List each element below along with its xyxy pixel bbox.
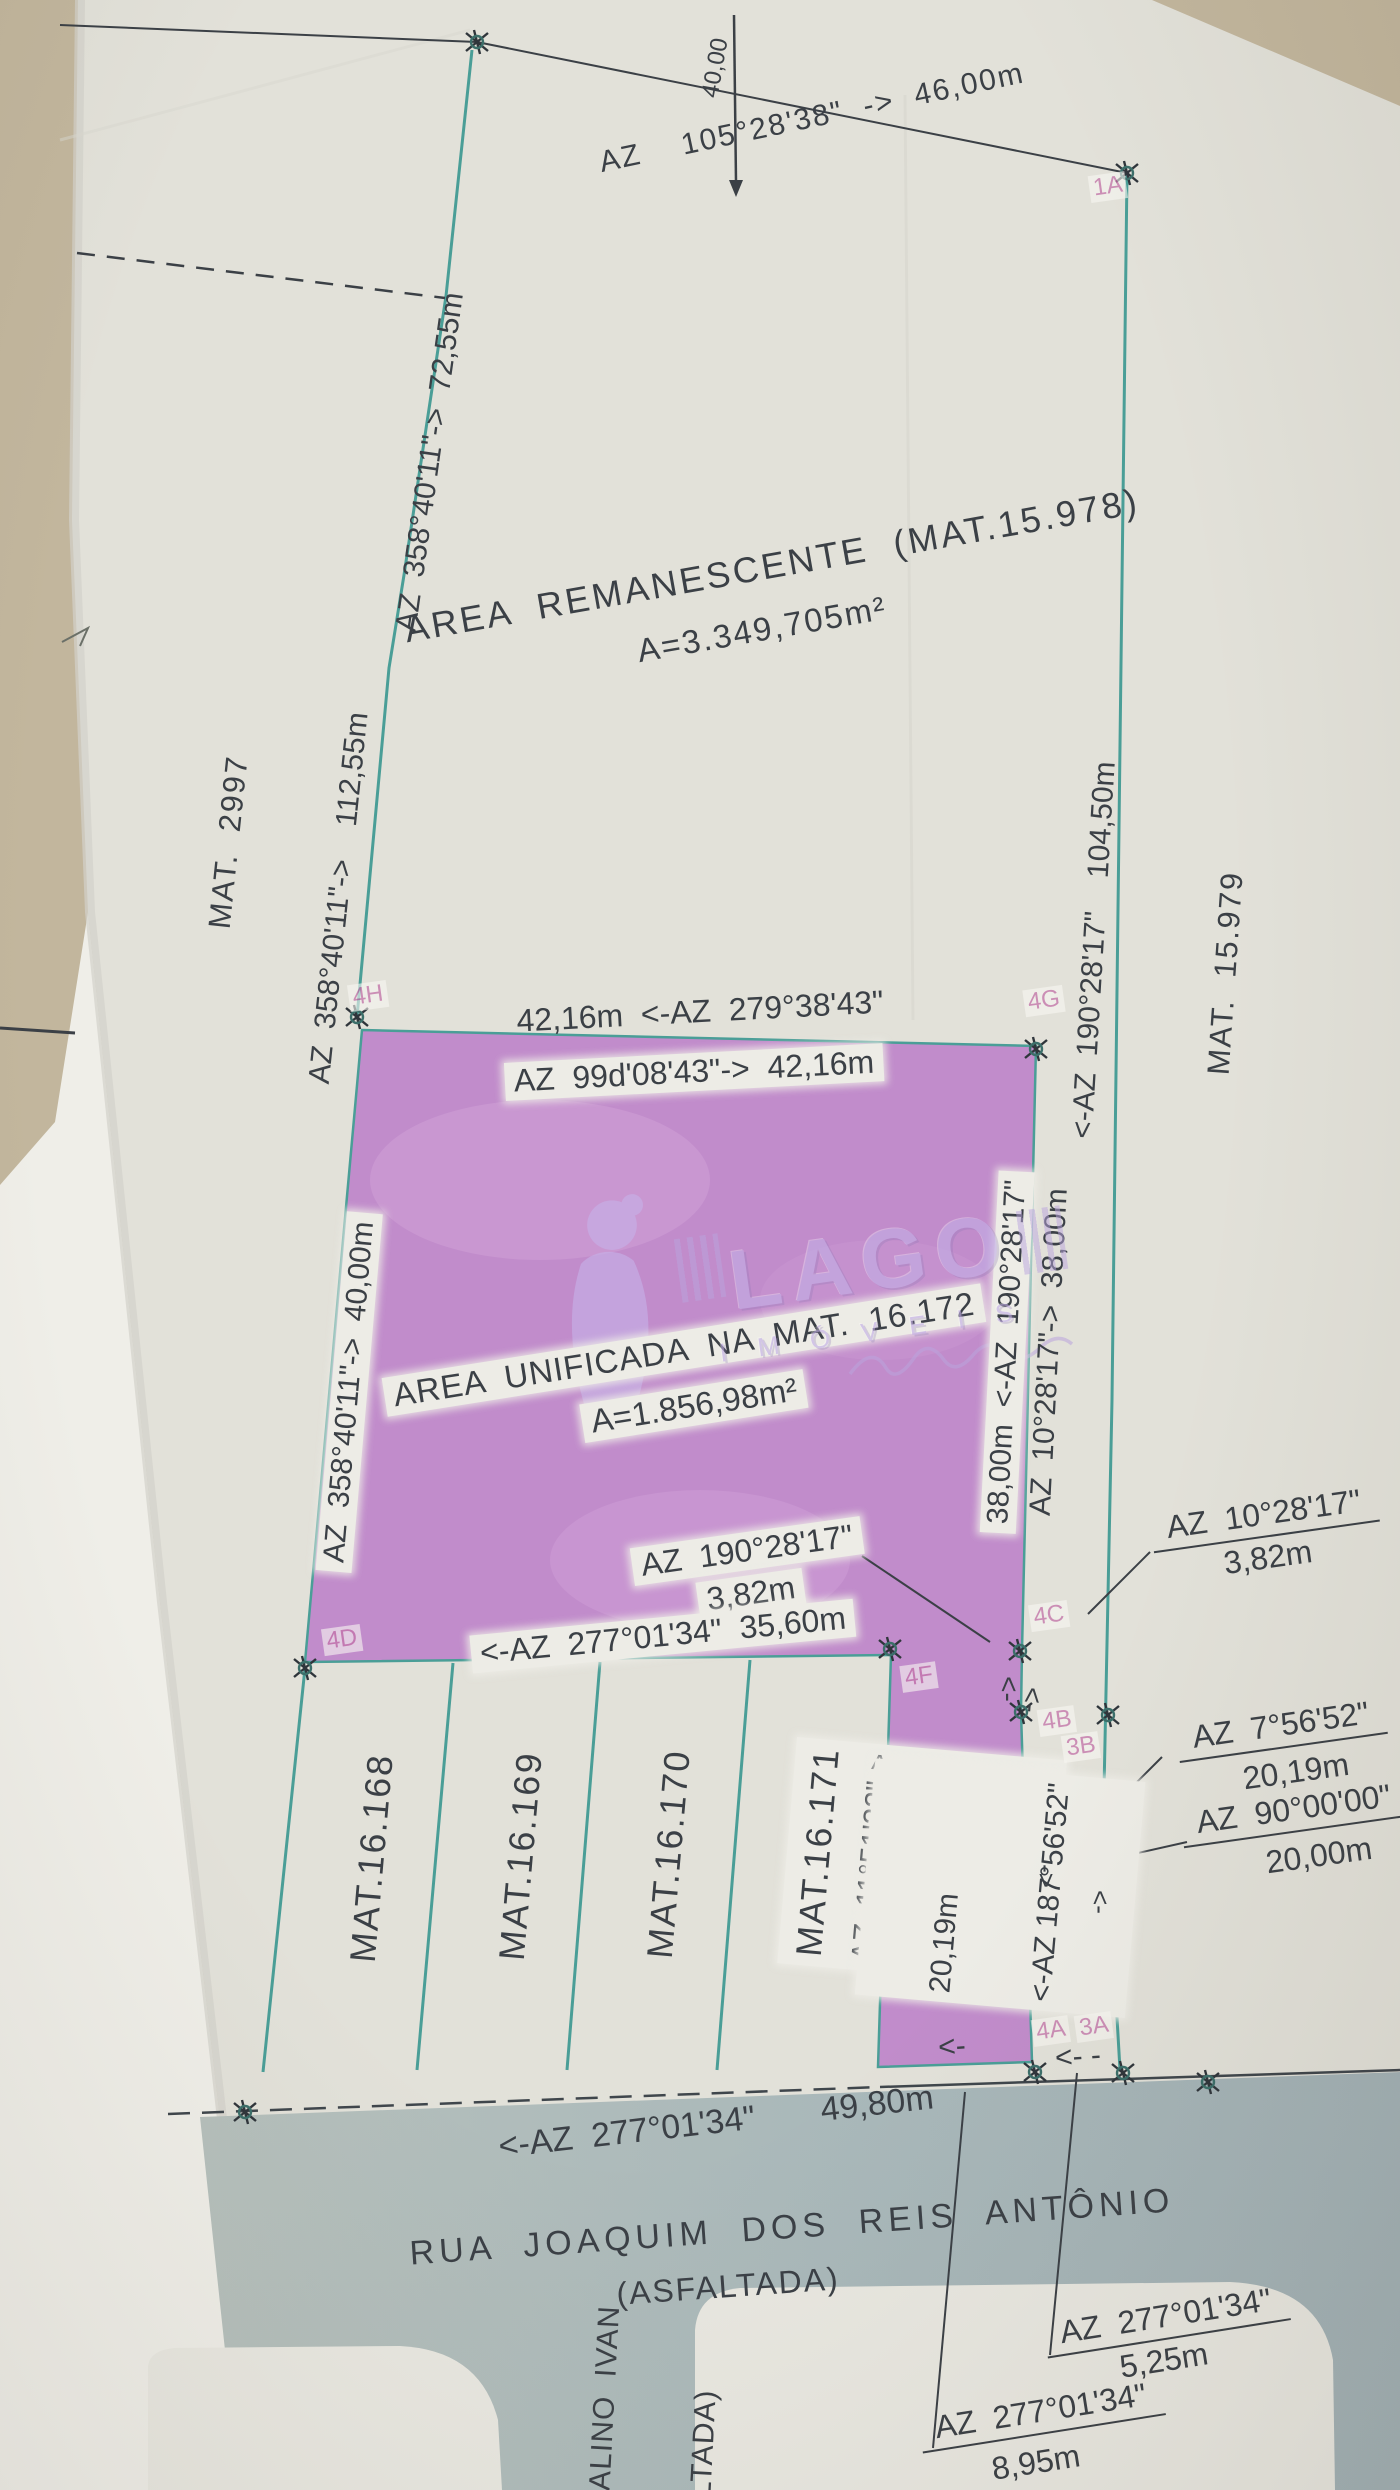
pen-line-left-sheet (0, 1028, 75, 1033)
point-label-1a: 1A (1088, 171, 1129, 203)
bearing-strip-east-dist: 20,19m (924, 1773, 977, 1994)
bearing-strip-east: 20,19m <-AZ 187°56'52" (855, 1758, 1145, 2018)
bearing-strip-east-az: <-AZ 187°56'52" (1024, 1782, 1077, 2003)
arrow-down-4c2-icon: <- (1015, 1686, 1048, 1714)
corner-lot-left (148, 2346, 502, 2490)
point-label-4c: 4C (1028, 1600, 1070, 1632)
point-label-3b: 3B (1061, 1731, 1102, 1763)
arrow-left-3a-icon: <- - (1054, 2039, 1102, 2076)
street-name-cross: DALINO IVAN ALTADA) (515, 2301, 794, 2490)
street-cross-line2: ALTADA) (683, 2310, 727, 2490)
point-label-4h: 4H (347, 980, 389, 1012)
survey-plan-photo: AZ 105°28'38" -> 46,00m 40,00 AREA REMAN… (0, 0, 1400, 2490)
arrow-up-2000-icon: -> (1031, 1864, 1060, 1888)
watermark-bars-right (1016, 1205, 1068, 1275)
arrow-down-2000-icon: <- (1085, 1890, 1114, 1914)
purple-highlight-1 (370, 1100, 710, 1260)
point-label-4d: 4D (321, 1624, 363, 1656)
point-label-4g: 4G (1022, 985, 1065, 1017)
street-cross-line1: DALINO IVAN (582, 2305, 626, 2490)
arrow-left-strip-icon: <- (937, 2029, 967, 2064)
point-label-4f: 4F (899, 1661, 938, 1693)
watermark-bars-left (674, 1233, 726, 1303)
